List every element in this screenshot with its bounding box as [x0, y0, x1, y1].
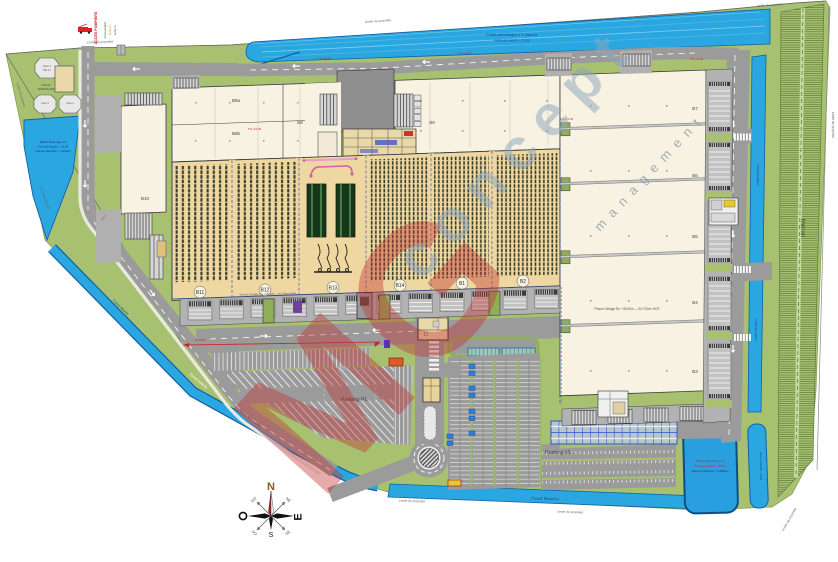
svg-text:Cuve 2: Cuve 2	[41, 102, 49, 105]
svg-text:TN +21.00: TN +21.00	[248, 127, 262, 131]
svg-text:B9b: B9b	[232, 131, 241, 136]
svg-text:Accès VL: Accès VL	[109, 24, 112, 35]
svg-text:N: N	[267, 481, 275, 493]
svg-text:TN +21.00: TN +21.00	[318, 56, 332, 60]
svg-text:S: S	[269, 532, 274, 539]
svg-text:Cuve 1: Cuve 1	[43, 64, 52, 68]
svg-text:Fossé d'irrigation: Fossé d'irrigation	[754, 319, 758, 341]
svg-text:B11: B11	[196, 290, 205, 296]
svg-text:Parking VL.: Parking VL.	[545, 450, 574, 456]
svg-text:B6: B6	[692, 173, 698, 178]
svg-text:E: E	[292, 513, 304, 520]
svg-text:Phase Céliage Rn +45.50m — 94.: Phase Céliage Rn +45.50m — 94.700m² HOF	[594, 307, 659, 311]
svg-text:Fossé d'irrigation: Fossé d'irrigation	[756, 164, 760, 186]
svg-text:Fossé Blanche: Fossé Blanche	[531, 496, 559, 502]
svg-text:Noue de rétention – 20.00: Noue de rétention – 20.00	[759, 452, 762, 480]
svg-text:TN +21.00: TN +21.00	[458, 51, 472, 55]
svg-text:B10: B10	[141, 196, 150, 201]
svg-text:Limite de propriété: Limite de propriété	[831, 112, 835, 139]
svg-text:B4: B4	[692, 300, 698, 305]
svg-text:B5: B5	[692, 234, 698, 239]
svg-text:Bassin Extension n°2: Bassin Extension n°2	[696, 459, 725, 463]
svg-text:ACCÈS POMPIERS: ACCÈS POMPIERS	[93, 11, 98, 44]
svg-text:PL 25.00: PL 25.00	[195, 338, 206, 342]
svg-text:Fossé périmétrique n°1 étanche: Fossé périmétrique n°1 étanche	[487, 33, 538, 37]
svg-text:Accès pompiers: Accès pompiers	[104, 21, 107, 39]
svg-text:Volume rétention = 3.200m³: Volume rétention = 3.200m³	[35, 149, 71, 153]
svg-text:Mérion: Mérion	[799, 219, 805, 237]
svg-text:500 m³: 500 m³	[43, 69, 51, 72]
svg-text:Cuve 3: Cuve 3	[66, 102, 74, 105]
svg-text:SPRINKLER: SPRINKLER	[37, 87, 55, 91]
svg-text:Accès PL: Accès PL	[114, 24, 117, 35]
svg-text:Bassin Relevage n°1: Bassin Relevage n°1	[40, 140, 67, 144]
svg-text:TN +21.00: TN +21.00	[690, 57, 704, 61]
svg-text:B9a: B9a	[232, 98, 241, 103]
svg-text:Volume rétention = 3.500m³: Volume rétention = 3.500m³	[692, 469, 729, 473]
svg-text:Fond de bassin + 20.20: Fond de bassin + 20.20	[694, 464, 726, 468]
svg-text:Fond de bassin + 21.00: Fond de bassin + 21.00	[494, 39, 530, 43]
svg-text:B3: B3	[692, 369, 698, 374]
svg-text:Fond de bassin – 21.00: Fond de bassin – 21.00	[38, 145, 69, 149]
